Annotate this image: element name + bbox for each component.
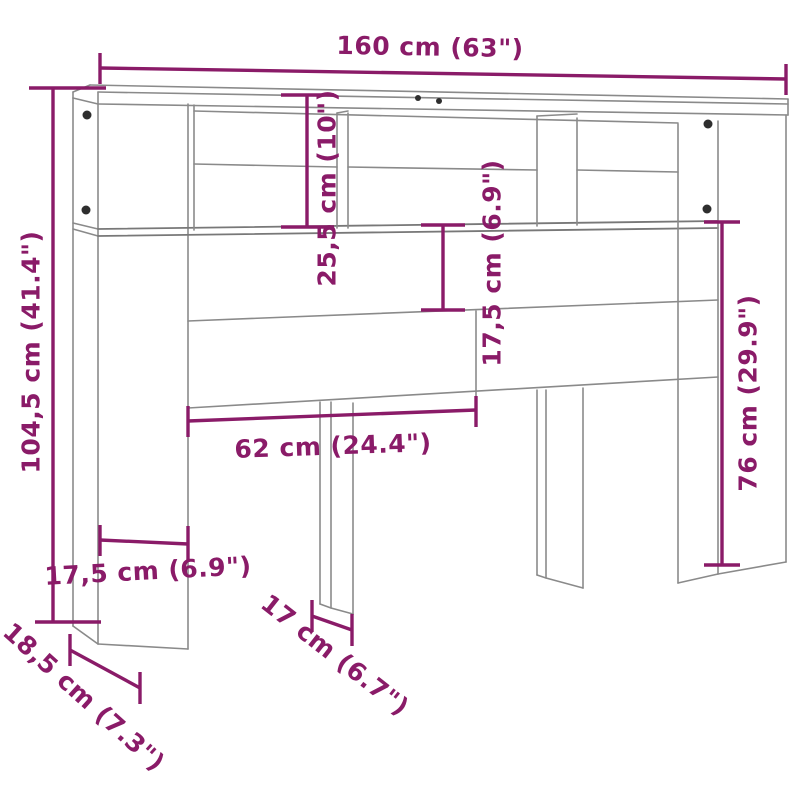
dim-back-panel-drop	[421, 225, 465, 310]
shelf-pin	[703, 205, 712, 214]
shelf-pin	[704, 120, 713, 129]
right-column	[678, 115, 786, 583]
shelf-pin	[82, 206, 91, 215]
label-back-panel-drop: 17,5 cm (6.9")	[478, 159, 507, 366]
back-panel	[188, 300, 718, 408]
shelf	[348, 167, 537, 170]
label-floor-clearance: 76 cm (29.9")	[734, 294, 763, 491]
dimension-diagram: 160 cm (63") 104,5 cm (41.4") 25,5 cm (1…	[0, 0, 800, 800]
cam-hole	[436, 98, 442, 104]
cam-hole	[415, 95, 421, 101]
headboard-line-drawing	[0, 0, 800, 800]
label-top-compartment-height: 25,5 cm (10")	[313, 89, 342, 286]
label-overall-height: 104,5 cm (41.4")	[17, 231, 46, 474]
top-panel	[73, 85, 788, 115]
upper-compartments	[98, 105, 718, 236]
label-overall-width: 160 cm (63")	[336, 31, 524, 63]
shelf	[577, 170, 678, 172]
shelf-pin	[83, 111, 92, 120]
right-leg	[537, 388, 583, 588]
